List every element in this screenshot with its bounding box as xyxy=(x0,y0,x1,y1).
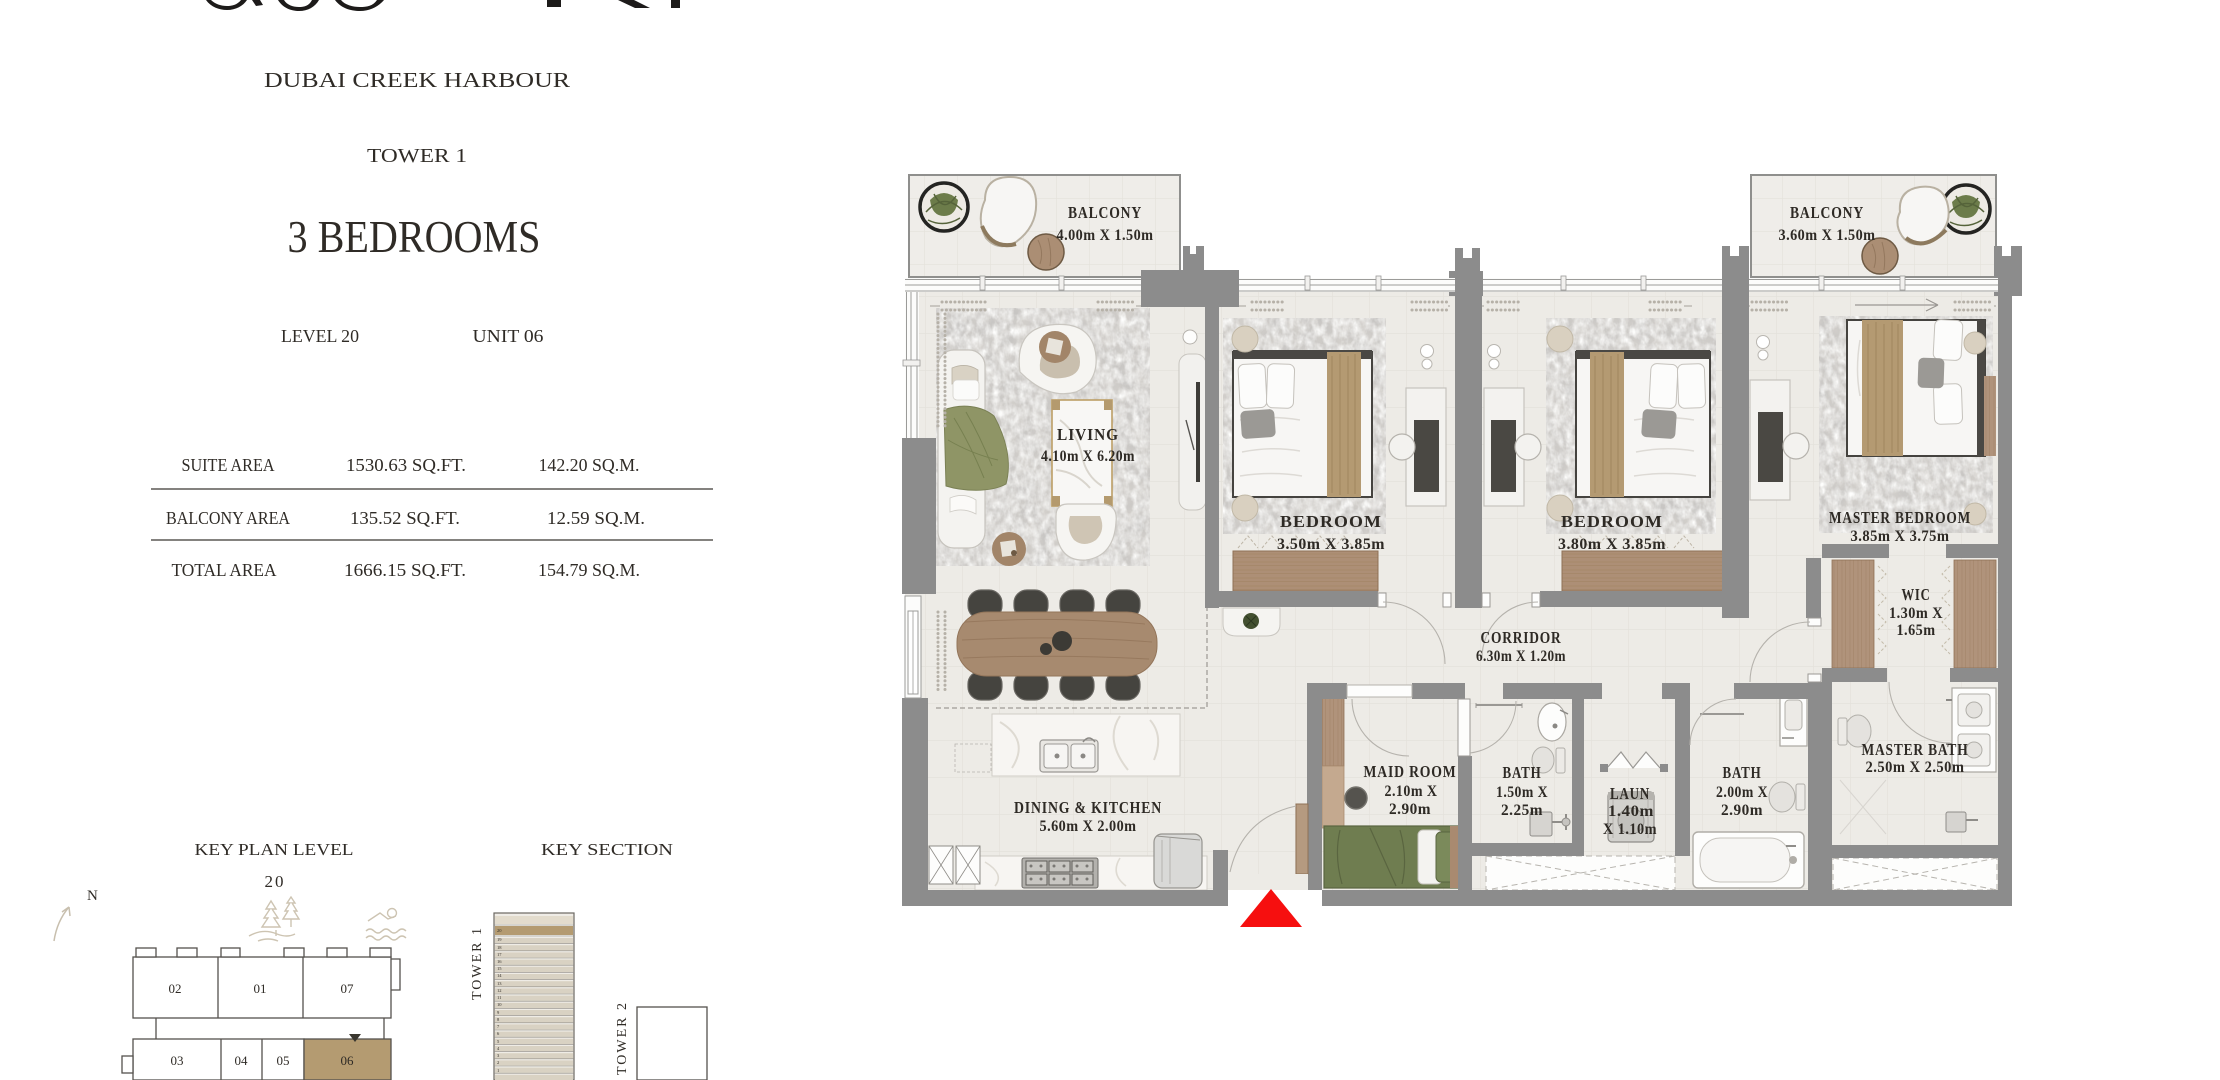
svg-text:10: 10 xyxy=(497,1002,502,1007)
svg-text:17: 17 xyxy=(497,952,502,957)
svg-text:2.90m: 2.90m xyxy=(1721,802,1763,819)
svg-text:N: N xyxy=(87,888,98,904)
svg-text:04: 04 xyxy=(235,1053,249,1068)
svg-text:4.10m X 6.20m: 4.10m X 6.20m xyxy=(1041,448,1135,465)
svg-text:LAUN: LAUN xyxy=(1610,784,1650,803)
svg-text:3.85m X 3.75m: 3.85m X 3.75m xyxy=(1851,528,1950,545)
svg-text:CORRIDOR: CORRIDOR xyxy=(1481,628,1562,647)
svg-text:15: 15 xyxy=(497,966,502,971)
svg-text:WIC: WIC xyxy=(1902,585,1931,604)
svg-text:3.80m X 3.85m: 3.80m X 3.85m xyxy=(1558,536,1666,553)
svg-text:1.65m: 1.65m xyxy=(1897,622,1936,639)
svg-text:142.20 SQ.M.: 142.20 SQ.M. xyxy=(539,455,640,475)
svg-text:BATH: BATH xyxy=(1723,763,1762,782)
svg-text:1.40m: 1.40m xyxy=(1608,803,1654,820)
svg-text:BEDROOM: BEDROOM xyxy=(1280,512,1382,531)
svg-text:MASTER BATH: MASTER BATH xyxy=(1862,740,1969,759)
svg-text:11: 11 xyxy=(497,995,501,1000)
svg-text:4.00m X 1.50m: 4.00m X 1.50m xyxy=(1057,227,1154,244)
svg-text:1666.15 SQ.FT.: 1666.15 SQ.FT. xyxy=(344,560,466,580)
svg-text:135.52 SQ.FT.: 135.52 SQ.FT. xyxy=(350,508,460,528)
svg-text:TOTAL AREA: TOTAL AREA xyxy=(172,560,277,580)
svg-text:BEDROOM: BEDROOM xyxy=(1561,512,1663,531)
svg-text:MAID ROOM: MAID ROOM xyxy=(1364,762,1457,781)
svg-text:BALCONY AREA: BALCONY AREA xyxy=(166,508,290,528)
svg-text:13: 13 xyxy=(497,981,502,986)
svg-text:18: 18 xyxy=(497,945,502,950)
svg-text:12: 12 xyxy=(497,988,502,993)
svg-text:2.10m X: 2.10m X xyxy=(1385,783,1438,800)
svg-text:DINING & KITCHEN: DINING & KITCHEN xyxy=(1014,798,1162,817)
svg-text:02: 02 xyxy=(169,981,182,996)
svg-text:05: 05 xyxy=(277,1053,290,1068)
svg-text:19: 19 xyxy=(497,937,502,942)
svg-text:20: 20 xyxy=(265,872,286,891)
svg-text:LIVING: LIVING xyxy=(1057,425,1119,444)
svg-text:SUITE AREA: SUITE AREA xyxy=(182,455,275,475)
svg-text:3.50m X 3.85m: 3.50m X 3.85m xyxy=(1277,536,1385,553)
svg-text:KEY PLAN LEVEL: KEY PLAN LEVEL xyxy=(195,840,354,859)
svg-text:06: 06 xyxy=(341,1053,355,1068)
svg-text:6.30m X 1.20m: 6.30m X 1.20m xyxy=(1476,648,1566,665)
svg-text:UNIT 06: UNIT 06 xyxy=(473,326,544,346)
svg-text:3.60m X 1.50m: 3.60m X 1.50m xyxy=(1779,227,1876,244)
svg-text:5.60m X 2.00m: 5.60m X 2.00m xyxy=(1040,818,1137,835)
svg-text:20: 20 xyxy=(497,928,502,933)
svg-text:03: 03 xyxy=(171,1053,184,1068)
svg-text:07: 07 xyxy=(341,981,355,996)
svg-text:BALCONY: BALCONY xyxy=(1790,203,1864,222)
svg-text:TOWER 1: TOWER 1 xyxy=(470,926,485,1000)
svg-text:1.50m X: 1.50m X xyxy=(1496,784,1548,801)
svg-text:154.79 SQ.M.: 154.79 SQ.M. xyxy=(538,560,640,580)
svg-text:2: 2 xyxy=(497,1060,499,1065)
svg-text:X 1.10m: X 1.10m xyxy=(1603,821,1657,838)
svg-text:3 BEDROOMS: 3 BEDROOMS xyxy=(288,212,541,262)
svg-text:KEY SECTION: KEY SECTION xyxy=(541,840,673,859)
svg-text:1: 1 xyxy=(497,1068,499,1073)
svg-text:12.59 SQ.M.: 12.59 SQ.M. xyxy=(547,508,645,528)
svg-text:TOWER 2: TOWER 2 xyxy=(615,1001,630,1075)
svg-text:LEVEL 20: LEVEL 20 xyxy=(281,326,359,346)
svg-text:BALCONY: BALCONY xyxy=(1068,203,1142,222)
svg-text:14: 14 xyxy=(497,973,502,978)
svg-text:2.90m: 2.90m xyxy=(1389,801,1431,818)
svg-text:MASTER BEDROOM: MASTER BEDROOM xyxy=(1829,508,1971,527)
svg-text:1.30m X: 1.30m X xyxy=(1889,605,1943,622)
svg-text:16: 16 xyxy=(497,959,502,964)
svg-text:2.50m X 2.50m: 2.50m X 2.50m xyxy=(1866,759,1965,776)
svg-text:TOWER 1: TOWER 1 xyxy=(367,145,467,167)
svg-text:01: 01 xyxy=(254,981,267,996)
svg-text:1530.63 SQ.FT.: 1530.63 SQ.FT. xyxy=(346,455,466,475)
svg-text:DUBAI CREEK HARBOUR: DUBAI CREEK HARBOUR xyxy=(264,68,570,92)
svg-text:2.25m: 2.25m xyxy=(1501,802,1543,819)
svg-text:2.00m X: 2.00m X xyxy=(1716,784,1768,801)
svg-text:BATH: BATH xyxy=(1503,763,1542,782)
